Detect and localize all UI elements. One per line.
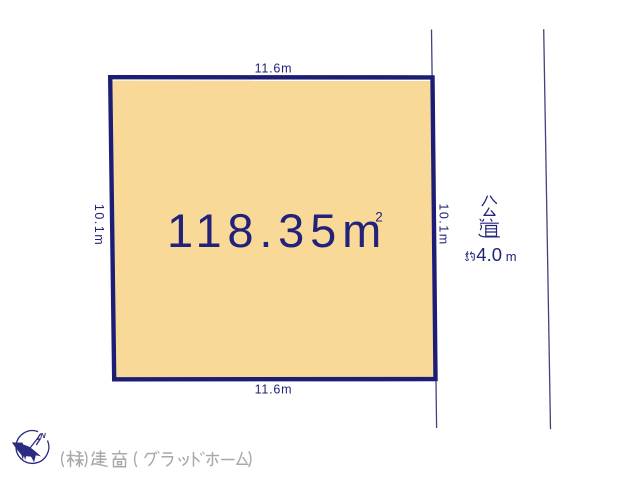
svg-text:10.1m: 10.1m (92, 204, 106, 246)
svg-text:11.6m: 11.6m (255, 382, 293, 396)
svg-text:2: 2 (375, 209, 383, 224)
svg-text:N: N (40, 431, 46, 440)
svg-text:118.35m: 118.35m (167, 204, 387, 257)
svg-text:m: m (506, 249, 517, 264)
svg-text:11.6m: 11.6m (255, 62, 293, 76)
svg-text:4.0: 4.0 (476, 244, 502, 265)
svg-text:10.1m: 10.1m (436, 203, 450, 245)
